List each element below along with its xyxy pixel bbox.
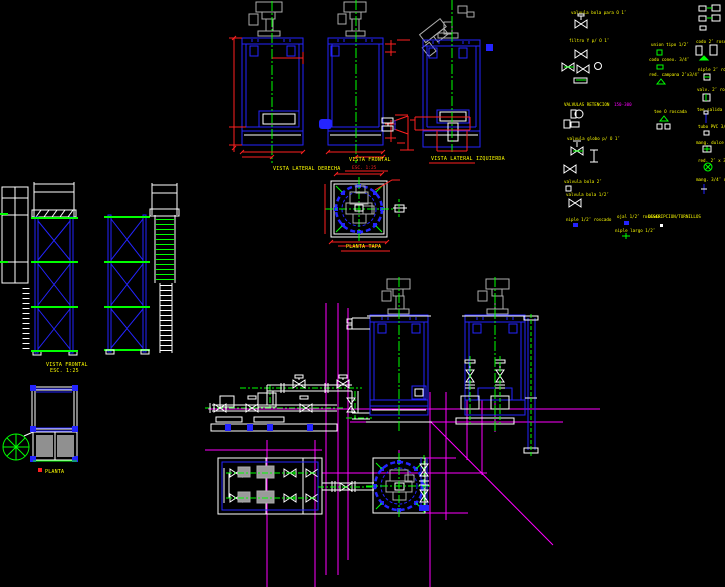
reference-grid-lines	[205, 303, 600, 587]
agitator-motor-icon	[338, 2, 366, 36]
piping-elevation	[205, 375, 372, 431]
legend-label: tubo PVC 3/4″	[698, 124, 725, 129]
legend-label: tee O roscada	[654, 109, 687, 114]
parts-legend: valvula bola para O 1″ filtro Y p/ O 1″ …	[562, 5, 725, 239]
spiral-stair-icon	[3, 434, 29, 460]
caption-tank2-scale: ESC. 1:25	[352, 165, 377, 171]
tank1-elevation: VISTA LATERAL DERECHA	[229, 1, 340, 172]
legend-label: mang. 3/4″ dulce	[696, 177, 725, 182]
legend-label: valvula bola 2″	[564, 179, 602, 184]
legend-label: valv. 2″ roscada	[697, 87, 725, 92]
side-nozzle-detail	[382, 116, 414, 150]
caption-tank1: VISTA LATERAL DERECHA	[273, 166, 340, 172]
legend-label: tee salida p/ O	[697, 107, 725, 112]
legend-label: codo conex. 3/4″	[649, 57, 689, 62]
caption-platform-scale: ESC. 1:25	[50, 368, 79, 374]
agitator-motor-icon	[382, 279, 410, 314]
platform-plan-view: PLANTA	[3, 385, 78, 475]
legend-label: codo 2″ roscado	[696, 39, 725, 44]
platform-front-elevation: VISTA FRONTAL ESC. 1:25	[0, 182, 88, 374]
agitator-top-icon	[386, 470, 414, 500]
agitator-motor-icon	[249, 2, 282, 36]
manhole-lug	[319, 119, 332, 129]
legend-label: union tipo 1/2″	[651, 42, 689, 47]
drop-pipe-valves	[419, 455, 429, 515]
legend-label: mang. dulce p/ O	[696, 140, 725, 145]
cad-drawing-viewport[interactable]: VISTA LATERAL DERECHA VISTA FRONTAL ESC.…	[0, 0, 725, 587]
tank3-elevation: VISTA LATERAL IZQUIERDA	[395, 0, 505, 163]
platform-side-elevation	[104, 183, 179, 354]
cad-canvas[interactable]: VISTA LATERAL DERECHA VISTA FRONTAL ESC.…	[0, 0, 725, 587]
legend-label: DESCRIPCION/TORNILLOS	[648, 214, 701, 219]
legend-label: valvula globo p/ O 1″	[567, 136, 620, 141]
caption-flange-plan: PLANTA TAPA	[346, 244, 381, 250]
flange-plan-view: PLANTA TAPA	[325, 172, 407, 251]
legend-label: red. 2″ x 3/4″	[698, 158, 725, 163]
legend-header: VALVULAS RETENCION	[564, 102, 610, 107]
caption-tank3-title: VISTA LATERAL IZQUIERDA	[431, 156, 505, 162]
legend-label: niple 2″ roscado	[698, 67, 725, 72]
legend-label: valvula bola 1/2″	[566, 192, 609, 197]
tank5-elevation	[456, 277, 538, 456]
dimension-lines	[229, 36, 305, 159]
legend-label: niple 1/2″ roscado	[566, 217, 612, 222]
agitator-motor-icon	[478, 279, 509, 314]
round-tank-plan	[366, 453, 432, 519]
legend-label: red. campana 2″x3/4″	[649, 72, 699, 77]
tank2-elevation: VISTA FRONTAL ESC. 1:25	[319, 0, 396, 171]
caption-tank2-title: VISTA FRONTAL	[349, 157, 391, 163]
pump-skid-plan	[218, 458, 376, 514]
dimension-lines	[326, 40, 396, 159]
legend-label: filtro Y p/ O 1″	[569, 38, 609, 43]
legend-label: niple largo 1/2″	[615, 228, 655, 233]
legend-header-code: 150-300	[614, 102, 632, 107]
caption-platform-plan: PLANTA	[45, 469, 64, 475]
